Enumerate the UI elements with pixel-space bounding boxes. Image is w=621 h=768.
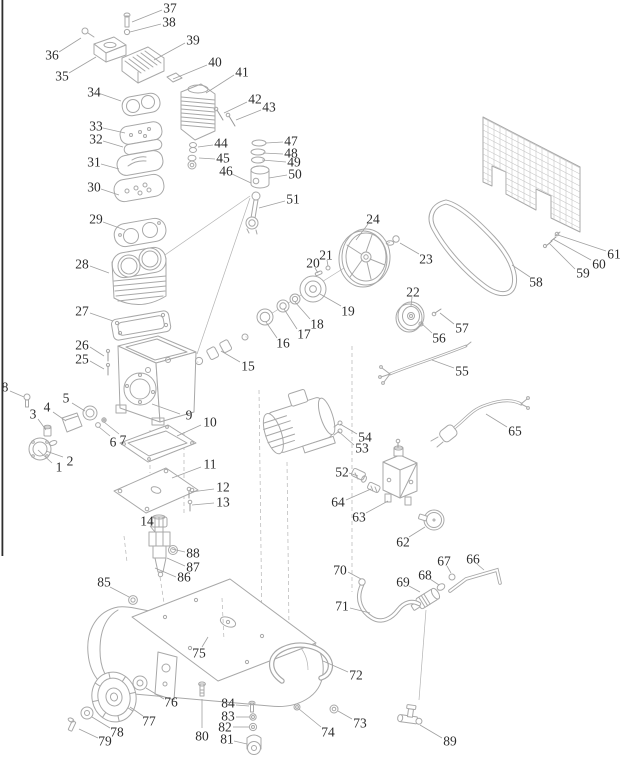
leader-line-43: [236, 110, 261, 120]
leader-line-17: [284, 309, 297, 329]
part-15-crankshaft: [195, 334, 248, 365]
part-label-39: 39: [186, 33, 200, 48]
part-19-hub: [300, 276, 326, 302]
part-63-pressure-switch: [383, 439, 417, 505]
part-label-66: 66: [466, 552, 480, 567]
part-48-piston-ring: [251, 149, 265, 155]
leader-line-35: [69, 57, 96, 73]
part-label-80: 80: [195, 729, 209, 744]
part-67-nut: [449, 574, 455, 580]
part-73-plug: [330, 705, 338, 713]
leader-line-37: [132, 10, 162, 22]
leader-line-13: [192, 503, 214, 505]
part-label-24: 24: [366, 212, 380, 227]
part-label-7: 7: [120, 433, 127, 448]
part-label-14: 14: [140, 514, 154, 529]
part-label-72: 72: [349, 668, 363, 683]
leader-line-27: [90, 313, 113, 321]
part-44-valve-spring: [190, 143, 197, 153]
leader-line-56: [421, 323, 432, 333]
part-66-outlet-pipe: [450, 570, 500, 591]
part-label-32: 32: [89, 132, 103, 147]
part-label-30: 30: [87, 180, 101, 195]
leader-line-55: [432, 360, 454, 368]
part-label-12: 12: [216, 480, 230, 495]
part-39-head-cover: [122, 47, 164, 83]
part-label-5: 5: [63, 391, 70, 406]
part-label-76: 76: [164, 695, 178, 710]
leader-line-19: [320, 294, 341, 306]
part-27-base-gasket: [111, 310, 172, 341]
part-label-8: 8: [2, 380, 9, 395]
leader-line-50: [269, 175, 287, 178]
part-label-3: 3: [30, 407, 37, 422]
leader-line-48: [263, 153, 283, 154]
part-label-18: 18: [310, 317, 324, 332]
part-57-bolt: [432, 309, 441, 316]
leader-line-6: [99, 427, 110, 436]
part-label-41: 41: [235, 65, 249, 80]
leader-line-41: [206, 75, 234, 93]
part-29-gasket: [112, 217, 167, 249]
part-label-75: 75: [192, 646, 206, 661]
part-label-77: 77: [142, 714, 156, 729]
page-edge-line: [2, 0, 4, 556]
part-label-89: 89: [443, 734, 457, 749]
part-58-v-belt: [431, 202, 515, 294]
part-37-38-bolt-washer: [124, 13, 130, 35]
leader-line-11: [172, 467, 201, 478]
part-label-20: 20: [306, 256, 320, 271]
part-label-54: 54: [358, 430, 372, 445]
leader-line-81: [234, 741, 247, 744]
part-62-pressure-gauge: [418, 510, 444, 530]
part-10-base-gasket: [120, 425, 196, 462]
part-label-21: 21: [319, 248, 333, 263]
part-label-33: 33: [89, 119, 103, 134]
leader-line-49: [262, 160, 286, 162]
part-label-17: 17: [297, 327, 311, 342]
part-59-belt-guard-grill: [483, 100, 580, 240]
part-label-59: 59: [576, 266, 590, 281]
leader-line-40: [173, 65, 207, 79]
part-label-35: 35: [55, 69, 69, 84]
part-22-pulley: [396, 302, 424, 332]
part-label-42: 42: [248, 92, 262, 107]
part-54-motor-bolt: [334, 421, 342, 427]
part-label-23: 23: [419, 252, 433, 267]
part-6-bolt: [96, 423, 101, 428]
part-label-51: 51: [286, 192, 300, 207]
part-label-25: 25: [75, 352, 89, 367]
part-77-hubcap: [133, 676, 147, 690]
leader-line-44: [198, 145, 213, 147]
part-label-70: 70: [333, 563, 347, 578]
leader-line-57: [440, 313, 454, 324]
part-81-caster: [247, 735, 261, 755]
leader-line-87: [167, 558, 185, 566]
leader-line-3: [38, 419, 46, 430]
leader-line-42: [224, 102, 247, 113]
part-label-10: 10: [203, 415, 217, 430]
part-51-connecting-rod: [246, 192, 260, 234]
part-5-seal: [83, 406, 97, 420]
part-3-oil-plug: [44, 425, 51, 436]
part-label-64: 64: [331, 495, 345, 510]
part-label-63: 63: [352, 510, 366, 525]
part-label-22: 22: [406, 285, 420, 300]
part-label-28: 28: [75, 257, 89, 272]
part-65-power-cord: [431, 397, 529, 447]
part-label-67: 67: [437, 554, 451, 569]
part-label-11: 11: [204, 457, 217, 472]
leader-line-69: [409, 586, 420, 592]
part-label-55: 55: [455, 364, 469, 379]
part-50-piston: [251, 166, 269, 188]
leader-line-79: [79, 729, 98, 738]
leader-line-59: [549, 243, 575, 269]
part-label-31: 31: [87, 155, 101, 170]
part-89-drain-cock: [397, 703, 424, 724]
part-label-26: 26: [75, 338, 89, 353]
part-1-2-sight-glass: [29, 438, 58, 460]
part-label-58: 58: [529, 275, 543, 290]
leader-line-47: [266, 142, 283, 143]
leader-line-28: [90, 266, 109, 273]
part-label-19: 19: [341, 304, 355, 319]
part-47-piston-ring: [252, 140, 266, 146]
part-34-head-gasket: [121, 92, 162, 117]
part-label-37: 37: [163, 1, 177, 16]
leader-line-39: [154, 43, 185, 60]
part-label-15: 15: [241, 359, 255, 374]
part-label-4: 4: [44, 400, 51, 415]
part-41-cylinder: [181, 84, 215, 140]
part-13-bolt: [188, 500, 192, 511]
leader-line-84: [236, 705, 249, 706]
part-82-washer: [249, 723, 256, 730]
leader-line-89: [420, 725, 442, 738]
leader-line-54: [340, 424, 357, 434]
part-label-85: 85: [97, 575, 111, 590]
part-label-44: 44: [214, 136, 228, 151]
part-label-60: 60: [592, 257, 606, 272]
leader-line-45: [199, 158, 215, 159]
part-label-62: 62: [396, 535, 410, 550]
part-label-34: 34: [87, 85, 101, 100]
part-21-setscrew: [326, 266, 330, 270]
part-label-79: 79: [98, 734, 112, 749]
leader-line-7: [104, 422, 119, 434]
part-label-87: 87: [186, 560, 200, 575]
leader-line-74: [299, 709, 321, 727]
part-9-crankcase: [116, 336, 196, 425]
part-label-1: 1: [56, 460, 63, 475]
leader-line-34: [101, 94, 121, 101]
part-4-breather-bracket: [62, 413, 82, 432]
part-70-71-discharge-hose: [359, 579, 419, 621]
leader-line-18: [295, 302, 310, 319]
part-label-2: 2: [67, 454, 74, 469]
part-label-71: 71: [335, 599, 349, 614]
leader-line-51: [259, 201, 285, 208]
part-23-flywheel-bolt: [386, 236, 399, 245]
part-label-29: 29: [89, 212, 103, 227]
part-24-flywheel: [339, 229, 390, 287]
leader-line-61: [558, 235, 606, 251]
part-31-valve-plate: [116, 149, 165, 177]
part-79-axle-pin: [68, 717, 76, 731]
part-25-stud: [106, 363, 109, 375]
part-78-washer: [81, 707, 93, 719]
leader-line-62: [409, 527, 425, 537]
part-11-base-plate: [114, 468, 198, 513]
leader-line-60: [553, 239, 591, 260]
leader-line-73: [338, 711, 352, 719]
exploded-parts-diagram: 1234567891011121314151617181920212223242…: [0, 0, 621, 768]
part-36-screw: [82, 28, 94, 37]
part-motor: [256, 383, 341, 463]
part-40-fitting: [167, 73, 182, 82]
part-label-52: 52: [335, 465, 349, 480]
leader-line-85: [110, 587, 129, 597]
part-label-88: 88: [186, 546, 200, 561]
leader-line-5: [72, 403, 85, 411]
leader-line-36: [59, 38, 81, 52]
part-label-74: 74: [321, 725, 335, 740]
part-label-50: 50: [288, 167, 302, 182]
part-30-valve-plate: [112, 173, 165, 203]
part-52-fitting: [351, 468, 368, 483]
part-label-16: 16: [276, 336, 290, 351]
part-label-9: 9: [186, 408, 193, 423]
part-46-pin-clip: [188, 161, 196, 169]
part-label-36: 36: [45, 48, 59, 63]
part-label-43: 43: [262, 100, 276, 115]
part-label-27: 27: [75, 304, 89, 319]
part-label-73: 73: [353, 716, 367, 731]
part-42-bolt: [214, 107, 223, 120]
leader-line-64: [346, 489, 371, 500]
leader-line-15: [221, 351, 240, 362]
leader-line-53: [338, 431, 354, 445]
part-16-bearing: [257, 309, 273, 325]
leader-line-26: [90, 347, 104, 356]
leader-line-23: [400, 243, 419, 254]
leader-line-46: [232, 174, 251, 183]
leader-line-25: [90, 361, 104, 369]
part-64-nipple: [367, 482, 381, 493]
leader-line-70: [348, 572, 361, 579]
part-label-38: 38: [162, 15, 176, 30]
part-35-air-filter: [94, 37, 126, 62]
part-26-stud: [106, 349, 109, 361]
leader-line-32: [103, 141, 123, 147]
part-8-valve: [24, 394, 30, 407]
leader-line-8: [10, 391, 24, 397]
part-83-nut: [250, 714, 256, 720]
part-wheel-bracket: [155, 652, 177, 700]
part-28-cylinder-block: [110, 245, 168, 304]
part-label-83: 83: [221, 709, 235, 724]
part-label-78: 78: [110, 725, 124, 740]
leader-line-38: [130, 24, 161, 32]
leader-line-63: [366, 501, 388, 513]
part-45-washer: [188, 155, 196, 161]
part-7-washer: [102, 418, 106, 422]
part-85-nut: [129, 596, 138, 605]
part-label-6: 6: [110, 435, 117, 450]
leader-line-65: [486, 414, 507, 427]
part-label-57: 57: [455, 321, 469, 336]
leader-line-10: [177, 425, 201, 436]
leader-line-4: [53, 412, 66, 421]
part-label-84: 84: [221, 696, 235, 711]
part-43-bolt: [226, 113, 235, 126]
part-label-61: 61: [607, 247, 621, 262]
leader-line-31: [101, 164, 119, 169]
part-label-40: 40: [208, 55, 222, 70]
part-label-13: 13: [216, 495, 230, 510]
part-20-key: [315, 271, 323, 276]
part-label-65: 65: [508, 424, 522, 439]
part-17-washer: [277, 300, 289, 312]
part-label-69: 69: [396, 575, 410, 590]
part-label-46: 46: [219, 164, 233, 179]
part-label-68: 68: [418, 568, 432, 583]
part-label-56: 56: [432, 331, 446, 346]
